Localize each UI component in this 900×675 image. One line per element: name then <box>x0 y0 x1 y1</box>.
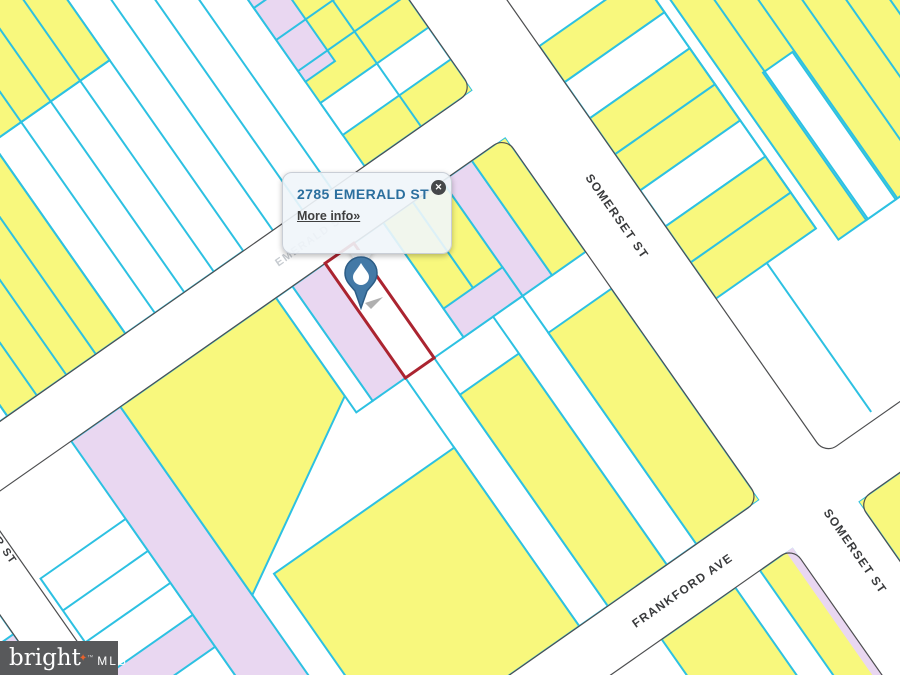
parcel-line <box>767 263 871 412</box>
logo-tm: ™ <box>87 655 93 661</box>
property-popup: 2785 EMERALD ST More info» ✕ <box>282 172 452 254</box>
map-canvas[interactable]: EMERALD STSOMERSET STSOMERSET STFRANKFOR… <box>0 0 900 675</box>
logo-brand-text: bright <box>9 643 81 673</box>
close-icon[interactable]: ✕ <box>431 180 446 195</box>
map-rotated-layer: EMERALD STSOMERSET STSOMERSET STFRANKFOR… <box>0 0 900 675</box>
bright-mls-logo: bright✦™ MLS <box>0 641 118 675</box>
property-marker-pin[interactable] <box>339 255 385 315</box>
popup-title: 2785 EMERALD ST <box>297 186 439 202</box>
logo-suffix-text: MLS <box>97 654 128 668</box>
logo-spark-icon: ✦ <box>79 653 87 664</box>
marker-shadow <box>365 297 383 309</box>
map-stage: EMERALD STSOMERSET STSOMERSET STFRANKFOR… <box>0 0 900 675</box>
more-info-link[interactable]: More info» <box>297 209 360 223</box>
